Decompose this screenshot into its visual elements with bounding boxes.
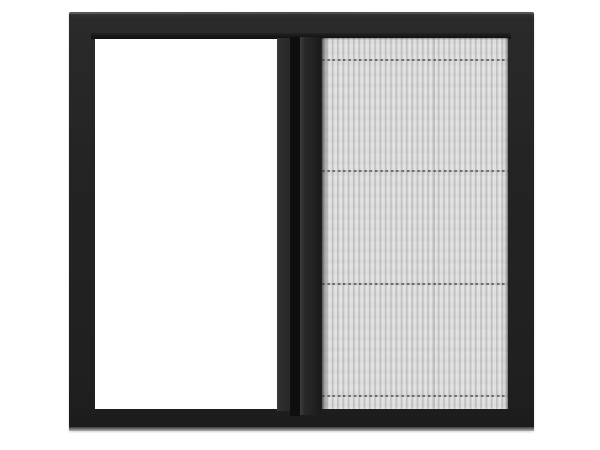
mesh-right-shadow [504, 38, 508, 409]
mesh-divider [322, 59, 508, 61]
window-frame [69, 12, 534, 431]
sash-stile-bar [277, 38, 290, 411]
mesh-divider [322, 283, 508, 285]
mesh-divider [322, 395, 508, 397]
mesh-divider [322, 170, 508, 172]
frame-inner-opening [93, 38, 509, 409]
mesh-left-shadow [322, 38, 328, 409]
glass-pane [95, 39, 277, 409]
pleated-mesh-screen [322, 38, 508, 409]
sliding-track-groove [290, 37, 300, 416]
frame-bottom-sill-highlight [69, 427, 534, 431]
mesh-pleat-seam [434, 38, 435, 409]
frame-top-edge-highlight [69, 12, 534, 14]
screen-pull-rail [300, 37, 321, 415]
mesh-top-shadow [322, 38, 508, 40]
product-photo-canvas [0, 0, 600, 450]
